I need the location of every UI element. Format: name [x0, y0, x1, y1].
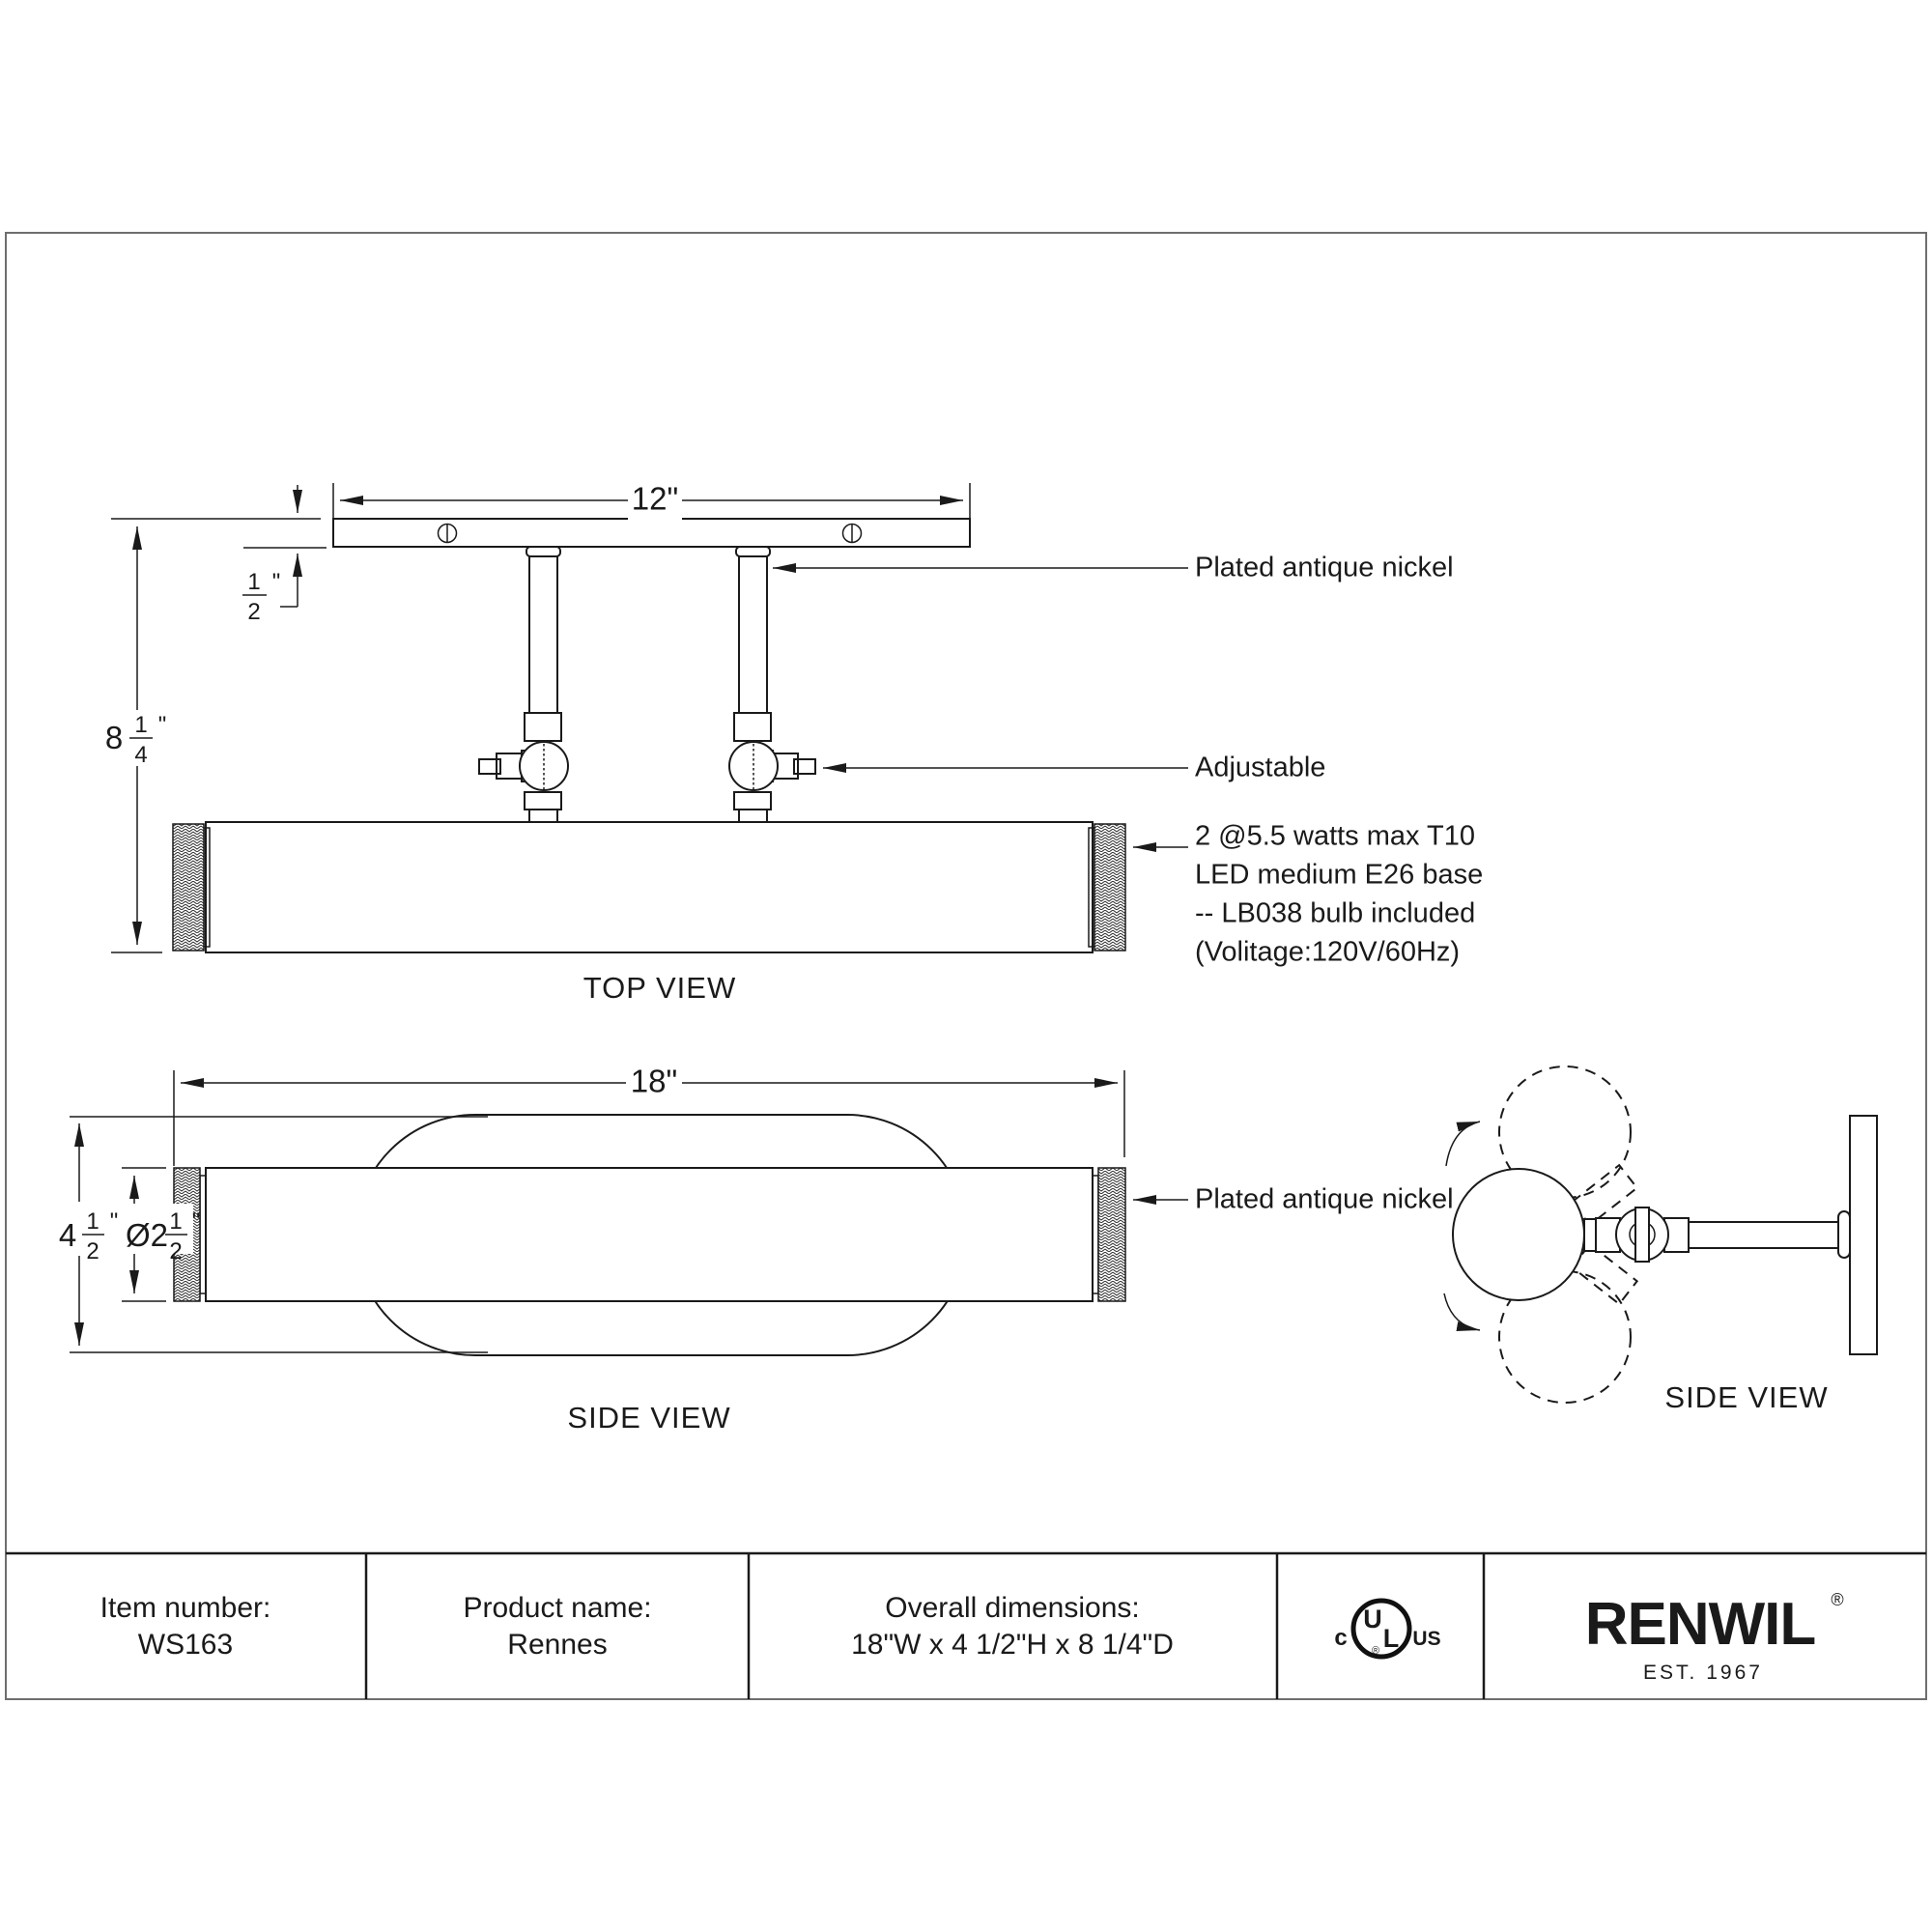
ul-reg: ® — [1372, 1645, 1379, 1657]
rotation-arrow-down — [1444, 1293, 1480, 1330]
dim-d2-whole: Ø2 — [126, 1217, 168, 1253]
screw-icon — [843, 524, 862, 543]
side-view-right: SIDE VIEW — [1444, 1066, 1877, 1414]
dim-8-whole: 8 — [105, 720, 123, 755]
side-view-right-label: SIDE VIEW — [1664, 1380, 1828, 1414]
bulb-spec-line: -- LB038 bulb included — [1195, 898, 1475, 929]
dim-d2-num: 1 — [169, 1208, 182, 1235]
renwil-logo: RENWIL ® EST. 1967 — [1585, 1590, 1844, 1684]
light-bar-end — [1453, 1169, 1584, 1300]
product-name-value: Rennes — [507, 1629, 607, 1661]
ul-u: U — [1363, 1605, 1382, 1634]
product-name-label: Product name: — [463, 1592, 651, 1624]
spec-sheet-page: 12" 8 1 4 " 1 2 " Plated an — [0, 0, 1932, 1932]
cell-overall-dimensions: Overall dimensions: 18"W x 4 1/2"H x 8 1… — [851, 1592, 1174, 1661]
right-arm — [729, 547, 815, 823]
mounting-plate — [333, 519, 970, 547]
dim-4-unit: " — [110, 1208, 119, 1235]
left-arm — [479, 547, 568, 823]
top-view: 12" 8 1 4 " 1 2 " Plated an — [100, 481, 1483, 1005]
dim-text-12: 12" — [632, 481, 678, 517]
dim-half-num: 1 — [247, 569, 260, 595]
dim-4-num: 1 — [86, 1208, 99, 1235]
top-view-label: TOP VIEW — [583, 971, 736, 1005]
dim-4-whole: 4 — [59, 1217, 76, 1253]
brand-est: EST. 1967 — [1643, 1662, 1763, 1684]
side-view-left: 18" 4 1 2 " Ø2 1 2 " Plated antique — [56, 1064, 1454, 1435]
dim-8-den: 4 — [134, 742, 147, 768]
brand-name: RENWIL — [1585, 1591, 1816, 1658]
finish-side-text: Plated antique nickel — [1195, 1184, 1454, 1215]
dim-height-4-1-2: 4 1 2 " — [56, 1123, 118, 1346]
ul-c: c — [1334, 1625, 1347, 1651]
knurled-end-cap — [1098, 1168, 1125, 1301]
ul-l: L — [1383, 1624, 1400, 1653]
dim-4-den: 2 — [86, 1238, 99, 1264]
item-number-label: Item number: — [100, 1592, 271, 1624]
cell-product-name: Product name: Rennes — [463, 1592, 651, 1661]
bulb-spec-line: LED medium E26 base — [1195, 860, 1483, 891]
pivot-knob — [1616, 1207, 1668, 1262]
brand-reg: ® — [1831, 1590, 1843, 1609]
bulb-spec-line: 2 @5.5 watts max T10 — [1195, 821, 1475, 852]
dim-thickness-1-2: 1 2 " — [242, 485, 327, 625]
cul-us-certification-icon: U L ® c US — [1334, 1601, 1440, 1657]
ul-us: US — [1412, 1628, 1440, 1650]
technical-drawing: 12" 8 1 4 " 1 2 " Plated an — [0, 0, 1932, 1932]
side-view-label: SIDE VIEW — [567, 1401, 730, 1435]
leader-finish-top: Plated antique nickel — [773, 553, 1454, 583]
screw-icon — [439, 524, 457, 543]
item-number-value: WS163 — [138, 1629, 233, 1661]
leader-bulb-spec: 2 @5.5 watts max T10 LED medium E26 base… — [1133, 821, 1483, 968]
knurled-end-cap — [173, 824, 204, 951]
sheet-border — [6, 233, 1926, 1699]
dim-d2-den: 2 — [169, 1238, 182, 1264]
light-bar — [173, 822, 1125, 952]
leader-finish-side: Plated antique nickel — [1133, 1184, 1454, 1215]
dim-half-unit: " — [272, 569, 281, 595]
leader-adjustable: Adjustable — [823, 753, 1325, 783]
adjustable-text: Adjustable — [1195, 753, 1325, 783]
dim-8-num: 1 — [134, 712, 147, 738]
dim-text-18: 18" — [631, 1064, 677, 1099]
rotation-arrow-up — [1446, 1122, 1480, 1166]
dimensions-label: Overall dimensions: — [885, 1592, 1139, 1624]
dim-d2-unit: " — [192, 1208, 201, 1235]
dimensions-value: 18"W x 4 1/2"H x 8 1/4"D — [851, 1629, 1174, 1661]
light-bar-side — [174, 1168, 1125, 1301]
dim-half-den: 2 — [247, 599, 260, 625]
finish-top-text: Plated antique nickel — [1195, 553, 1454, 583]
cell-item-number: Item number: WS163 — [100, 1592, 271, 1661]
wall-plate — [1850, 1116, 1877, 1354]
title-block: Item number: WS163 Product name: Rennes … — [6, 1553, 1926, 1699]
knurled-end-cap — [1094, 824, 1125, 951]
bulb-spec-line: (Volitage:120V/60Hz) — [1195, 937, 1460, 968]
dim-8-unit: " — [158, 712, 167, 738]
